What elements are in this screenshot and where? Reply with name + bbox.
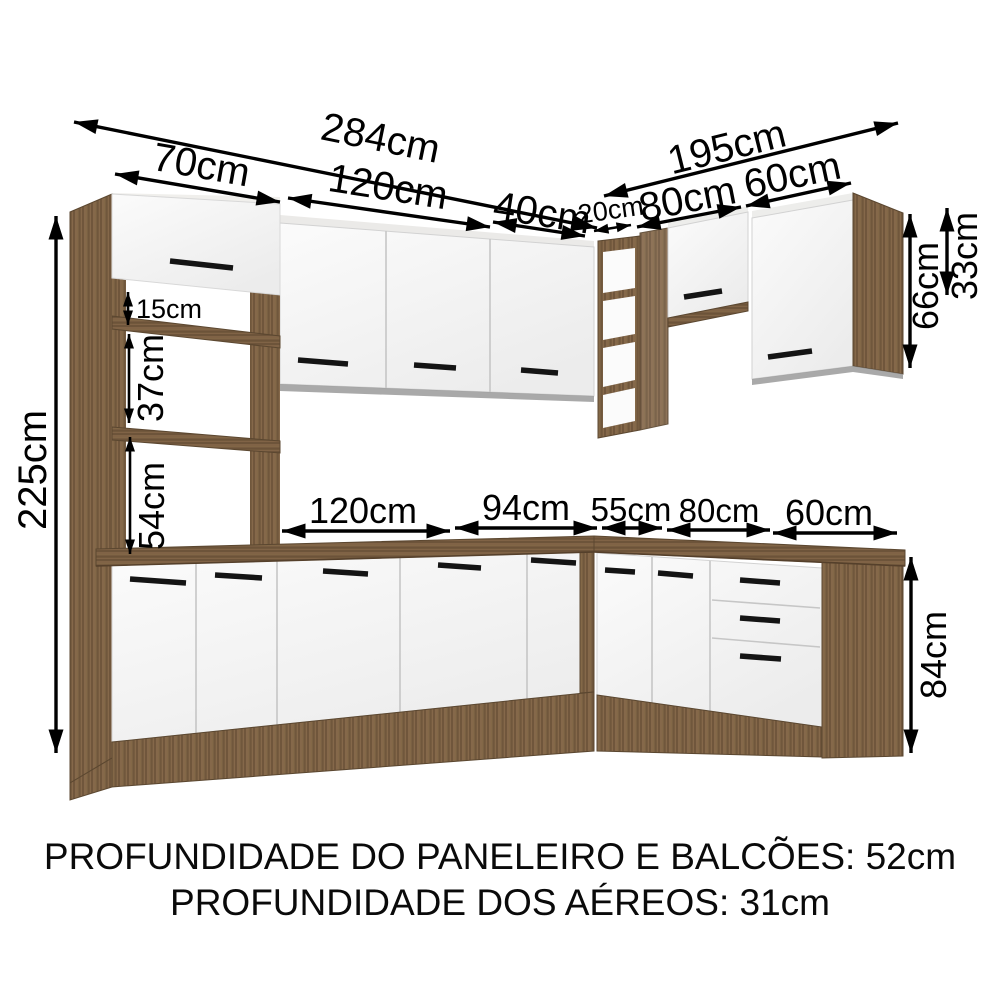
dim-120-base: 120cm: [282, 490, 450, 531]
dim-37: 37cm: [129, 334, 171, 423]
dim-label-37: 37cm: [130, 334, 171, 422]
dim-label-225: 225cm: [11, 410, 55, 530]
dim-label-15: 15cm: [136, 294, 202, 324]
footer: PROFUNDIDADE DO PANELEIRO E BALCÕES: 52c…: [44, 836, 956, 923]
door-handle: [414, 365, 456, 368]
drawer-handle: [740, 656, 781, 659]
corner-niche: [603, 342, 635, 387]
dim-80-base: 80cm: [667, 492, 770, 530]
dim-label-80-base: 80cm: [679, 492, 760, 529]
drawer-unit-side-panel: [822, 562, 903, 758]
corner-niche: [603, 248, 635, 293]
door-handle: [521, 370, 558, 373]
dim-60-base: 60cm: [773, 492, 897, 533]
dim-label-120-base: 120cm: [309, 490, 417, 531]
dim-label-66: 66cm: [905, 242, 946, 330]
corner-niche: [603, 296, 635, 340]
dim-94: 94cm: [455, 487, 597, 528]
corner-unit-side: [640, 228, 668, 430]
pantry-top-door: [112, 194, 280, 295]
base-cabinets-right-run: [597, 553, 903, 758]
footer-depth-uppers: PROFUNDIDADE DOS AÉREOS: 31cm: [170, 882, 830, 923]
dim-15: 15cm: [128, 292, 202, 325]
dim-33: 33cm: [944, 208, 985, 300]
upper-cabinets-left-run: [280, 215, 594, 402]
upper-cabinet-60: [752, 193, 903, 385]
dim-label-20: 20cm: [576, 191, 646, 230]
dim-55: 55cm: [591, 491, 672, 528]
upper-60-side-panel: [853, 193, 903, 374]
dim-70: 70cm: [115, 135, 280, 202]
pantry-inner-right-column: [250, 292, 280, 558]
kitchen-dimension-diagram: 284cm 70cm 120cm 40cm 195cm 20cm 80cm: [0, 0, 1000, 1000]
dim-20: 20cm: [576, 191, 646, 231]
diagram-canvas: 284cm 70cm 120cm 40cm 195cm 20cm 80cm: [0, 0, 1000, 1000]
footer-depth-pantry: PROFUNDIDADE DO PANELEIRO E BALCÕES: 52c…: [44, 836, 956, 877]
door-handle: [531, 560, 576, 563]
dim-label-60-base: 60cm: [785, 492, 873, 533]
door-handle: [438, 565, 481, 568]
drawer-handle: [740, 618, 780, 621]
door-handle: [323, 571, 368, 574]
dim-225: 225cm: [11, 216, 56, 753]
door-handle: [215, 575, 262, 578]
corner-niche: [603, 388, 635, 428]
pantry-side-panel: [70, 194, 112, 783]
dim-label-55: 55cm: [591, 491, 672, 528]
dim-66: 66cm: [905, 214, 946, 368]
drawer-handle: [740, 580, 780, 583]
dim-label-54: 54cm: [131, 462, 172, 550]
upper-cabinet-80: [668, 206, 748, 327]
base-corner-post: [580, 551, 594, 693]
dim-label-94: 94cm: [482, 487, 570, 528]
corner-shelf-unit: [598, 228, 668, 438]
dim-84: 84cm: [911, 557, 954, 753]
dim-label-70: 70cm: [149, 135, 253, 195]
dim-label-33: 33cm: [944, 212, 985, 300]
base-cabinets-left-run: [70, 551, 594, 800]
upper-80-door: [668, 212, 748, 318]
door-handle: [658, 573, 693, 576]
door-handle: [605, 570, 635, 572]
dim-120-top: 120cm: [288, 156, 490, 227]
dim-label-84: 84cm: [913, 611, 954, 699]
